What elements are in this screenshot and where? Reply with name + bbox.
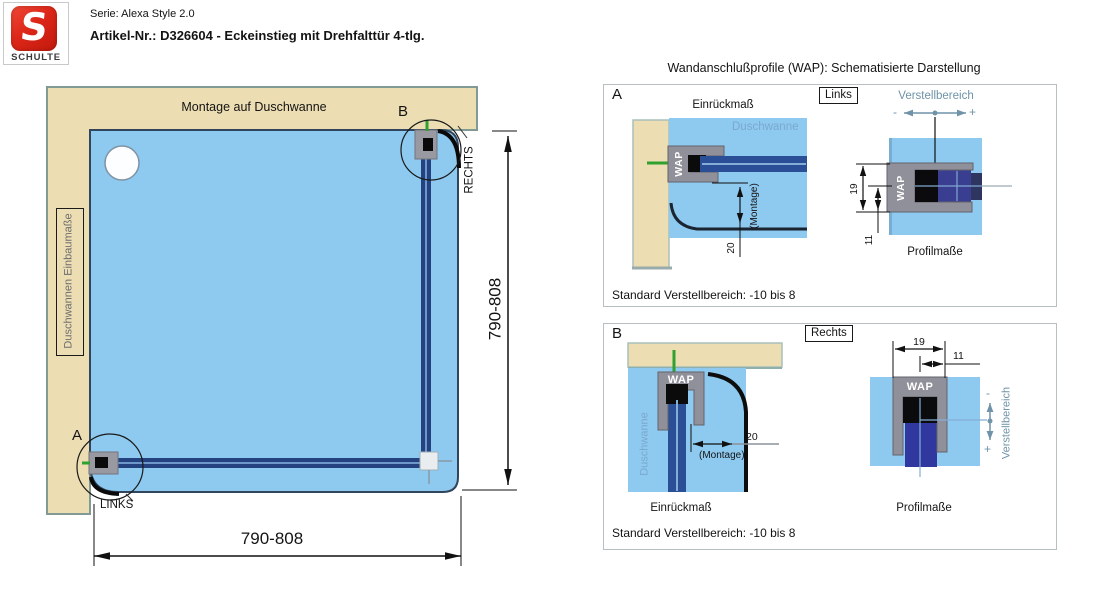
detail-circle-a	[77, 434, 143, 500]
plan-dimensions	[94, 131, 517, 566]
plan-walls-and-tray	[47, 87, 477, 514]
schulte-logo: S SCHULTE	[3, 2, 69, 65]
width-dimension: 790-808	[241, 530, 303, 547]
plus-sign-b: +	[984, 443, 991, 455]
panel-b-letter: B	[612, 326, 622, 341]
article-title: Artikel-Nr.: D326604 - Eckeinstieg mit D…	[90, 29, 424, 42]
wap-holder-a	[89, 452, 118, 474]
wap-label-a-left: WAP	[674, 151, 685, 176]
series-label: Serie: Alexa Style 2.0	[90, 9, 195, 20]
side-badge-rechts: Rechts	[805, 325, 853, 342]
detail-a-marker: A	[72, 428, 82, 443]
links-label: LINKS	[100, 500, 133, 512]
einrueckmass-label-b: Einrückmaß	[650, 503, 711, 515]
detail-b-marker: B	[398, 104, 408, 119]
wap-section-title: Wandanschlußprofile (WAP): Schematisiert…	[667, 62, 980, 75]
profilmasse-label-a: Profilmaße	[907, 247, 963, 259]
wap-label-b-left: WAP	[668, 375, 695, 386]
wap-label-a-right: WAP	[896, 175, 907, 200]
minus-sign-b: -	[986, 387, 990, 399]
height-dimension: 790-808	[487, 278, 504, 340]
verstellbereich-label-b: Verstellbereich	[1002, 387, 1013, 459]
dim-20-a: 20	[727, 242, 737, 253]
minus-sign-a: -	[893, 106, 897, 118]
page: S SCHULTE Serie: Alexa Style 2.0 Artikel…	[0, 0, 1116, 592]
standard-range-a: Standard Verstellbereich: -10 bis 8	[612, 289, 795, 301]
dim-11-b: 11	[953, 351, 964, 362]
tray-dimensions-label: Duschwannen Einbaumaße	[64, 213, 75, 348]
dim-20-b: 20	[746, 432, 758, 443]
side-badge-links: Links	[819, 87, 858, 104]
logo-brand-text: SCHULTE	[4, 52, 68, 63]
corner-junction	[420, 452, 438, 470]
panel-b	[603, 323, 1057, 550]
einrueckmass-label-a: Einrückmaß	[692, 100, 753, 112]
verstellbereich-label-a: Verstellbereich	[898, 91, 973, 103]
wap-holder-b	[415, 130, 437, 159]
schulte-logo-icon: S	[11, 6, 57, 51]
dim-19-a: 19	[850, 183, 860, 194]
plus-sign-a: +	[969, 106, 976, 118]
dim-19-b: 19	[913, 337, 925, 348]
duschwanne-label-b: Duschwanne	[640, 412, 651, 476]
panel-a	[603, 84, 1057, 307]
wap-label-b-right: WAP	[907, 382, 934, 393]
standard-range-b: Standard Verstellbereich: -10 bis 8	[612, 527, 795, 539]
profilmasse-label-b: Profilmaße	[896, 503, 952, 515]
duschwanne-label-a: Duschwanne	[732, 122, 798, 134]
rechts-label: RECHTS	[464, 146, 476, 193]
logo-letter: S	[18, 5, 50, 49]
wall-top-label: Montage auf Duschwanne	[181, 101, 326, 114]
montage-label-a: (Montage)	[750, 183, 760, 229]
drain-circle	[105, 146, 139, 180]
montage-label-b: (Montage)	[699, 451, 745, 461]
detail-circle-b	[401, 120, 461, 180]
dim-11-a: 11	[865, 235, 875, 245]
panel-a-letter: A	[612, 87, 622, 102]
